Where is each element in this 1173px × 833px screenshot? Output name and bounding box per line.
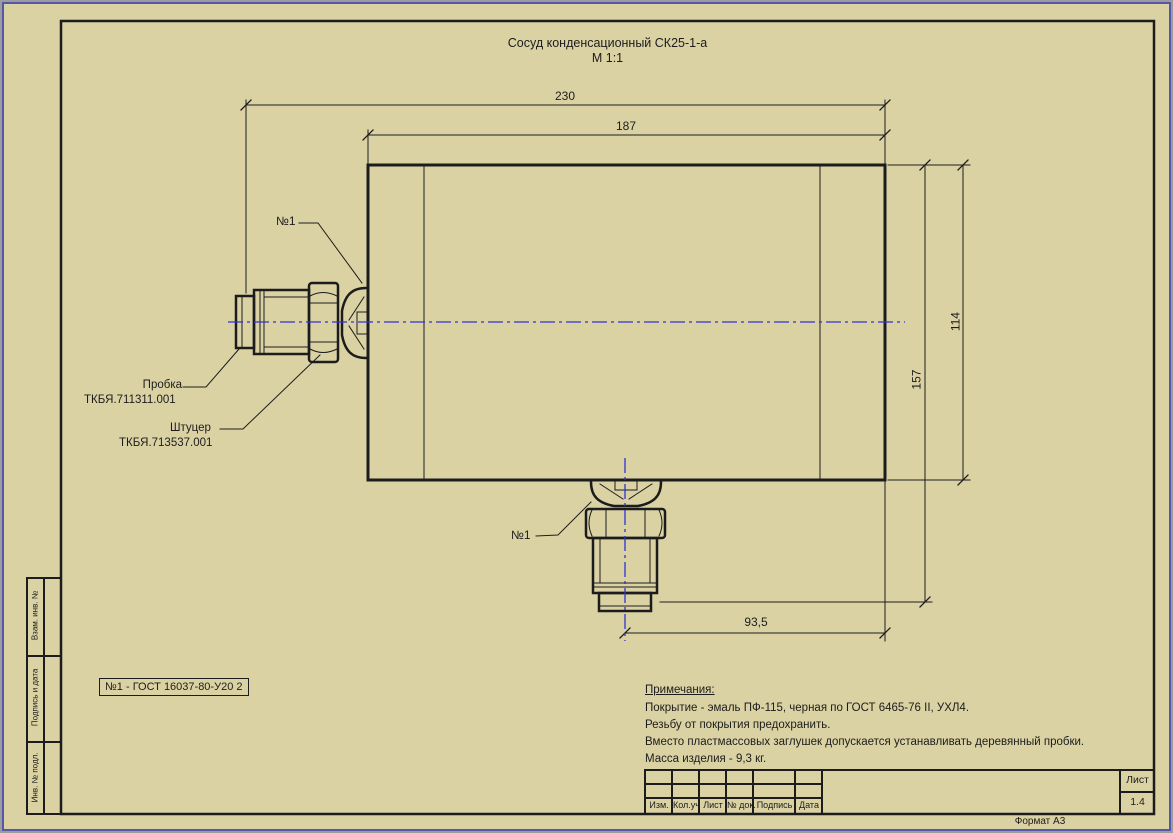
dim-187: 187 [596, 120, 656, 133]
titleblock-col-izm: Изм. [646, 801, 672, 811]
callout-no1-bottom: №1 [511, 529, 531, 542]
sidebar-label-podpis-data: Подпись и дата [32, 659, 41, 735]
dim-93-5: 93,5 [726, 616, 786, 629]
note-box: №1 - ГОСТ 16037-80-У20 2 [99, 678, 249, 696]
titleblock-col-list: Лист [700, 801, 726, 811]
notes-heading: Примечания: [645, 684, 715, 697]
note-line-3: Вместо пластмассовых заглушек допускаетс… [645, 736, 1084, 749]
dimension-lines [246, 100, 970, 641]
sidebar-label-inv-podl: Инв. № подл. [32, 739, 41, 815]
note-line-2: Резьбу от покрытия предохранить. [645, 719, 830, 732]
scale-label: М 1:1 [60, 52, 1155, 66]
leader-lines [183, 223, 591, 536]
callout-fitting-code: ТКБЯ.713537.001 [119, 437, 212, 450]
titleblock-col-data: Дата [796, 801, 822, 811]
sheet-number: 1.4 [1121, 797, 1154, 809]
dim-230: 230 [535, 90, 595, 103]
drawing-canvas [0, 0, 1173, 833]
callout-plug-name: Пробка [120, 379, 182, 392]
note-line-4: Масса изделия - 9,3 кг. [645, 753, 766, 766]
dim-157: 157 [910, 350, 923, 410]
titleblock-col-podpis: Подпись [754, 801, 795, 811]
note-line-1: Покрытие - эмаль ПФ-115, черная по ГОСТ … [645, 702, 969, 715]
dim-114: 114 [949, 292, 962, 352]
format-label: Формат А3 [990, 816, 1090, 827]
callout-fitting-name: Штуцер [170, 422, 211, 435]
sheet-label: Лист [1121, 775, 1154, 787]
dimension-ticks [241, 100, 968, 638]
drawing-sheet: Сосуд конденсационный СК25-1-а М 1:1 230… [0, 0, 1173, 833]
drawing-title: Сосуд конденсационный СК25-1-а [60, 37, 1155, 51]
titleblock-col-ndok: № док. [727, 801, 753, 811]
callout-plug-code: ТКБЯ.711311.001 [84, 394, 176, 407]
sidebar-label-vzam-inv: Взам. инв. № [32, 577, 41, 653]
callout-no1-left: №1 [276, 215, 296, 228]
titleblock-col-koluch: Кол.уч [673, 801, 699, 811]
